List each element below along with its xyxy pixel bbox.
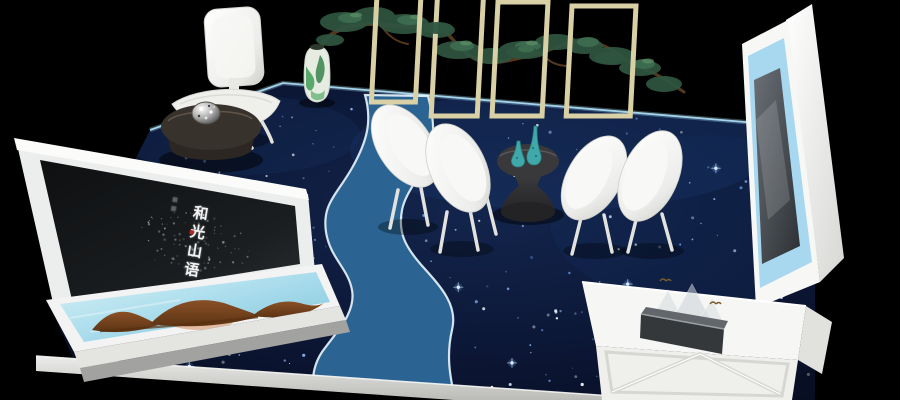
brand-mark-glyph (171, 206, 177, 212)
scene-canvas (0, 0, 900, 400)
silver-ornament (192, 102, 220, 124)
screen-title-text: 和光山语 (180, 204, 213, 282)
brand-mark-glyph (172, 197, 178, 203)
screen-title-block: 和光山语 (141, 186, 251, 300)
round-side-table (161, 102, 261, 160)
celadon-vase (304, 44, 330, 102)
red-seal-mark (189, 230, 194, 235)
booth-render: 和光山语 (0, 0, 900, 400)
